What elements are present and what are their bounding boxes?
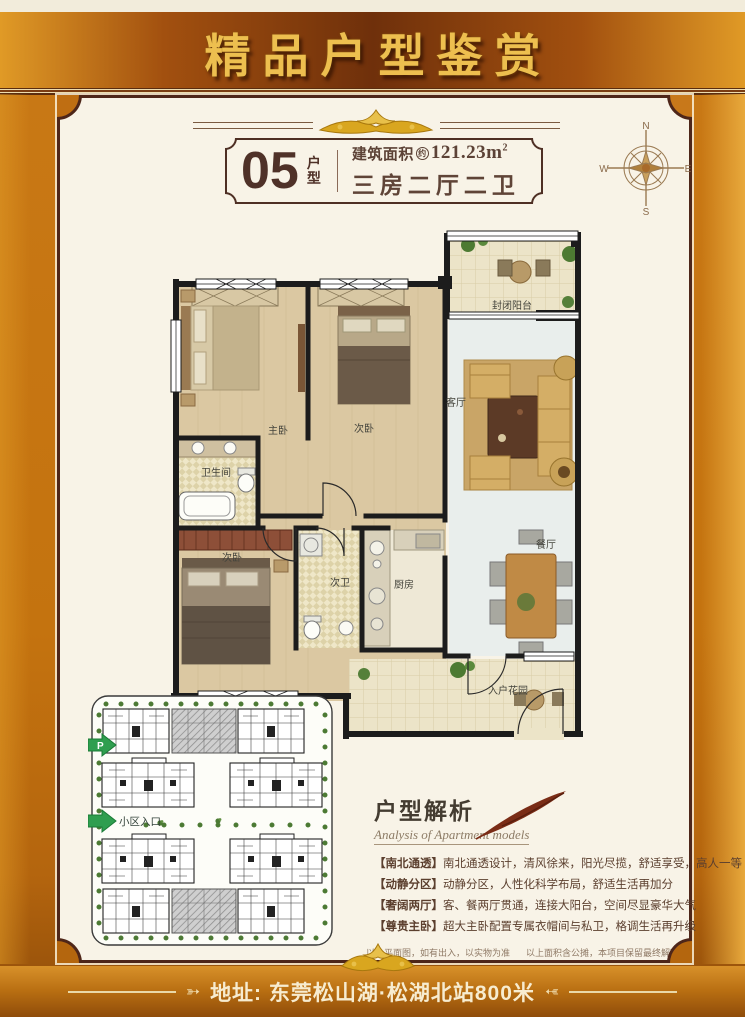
address-line-right — [569, 991, 677, 993]
unit-number: 05 — [241, 145, 299, 197]
room-label-entry-garden: 入户花园 — [488, 684, 528, 697]
address-ornament-right-icon: ➳ — [545, 983, 559, 1000]
panel-corner-notch — [667, 95, 692, 120]
gold-flourish-bottom-icon — [336, 940, 420, 980]
compass-n: N — [642, 121, 649, 132]
room-label-bathroom-2: 次卫 — [330, 576, 350, 589]
left-edge-glow — [0, 94, 30, 964]
poster-page: 精品户型鉴赏 05 户 型 建筑面积约121.23m2 三房二厅二卫 — [0, 0, 745, 1017]
address-line-left — [68, 991, 176, 993]
approx-circle: 约 — [416, 147, 429, 160]
room-label-balcony: 封闭阳台 — [492, 299, 532, 312]
room-label-bedroom-2: 次卧 — [354, 422, 374, 435]
banner-separator — [0, 88, 745, 95]
floorplan-drawing: 封闭阳台 客厅 主卧 次卧 卫生间 次卧 次卫 厨房 餐厅 入户花园 — [168, 228, 592, 746]
bedroom2-bed — [338, 306, 410, 404]
address-text: 地址: 东莞松山湖·松湖北站800米 — [210, 977, 535, 1007]
unit-details: 建筑面积约121.23m2 三房二厅二卫 — [352, 142, 520, 200]
analysis-items: 【南北通透】南北通透设计，清风徐来，阳光尽揽，舒适享受，高人一等 【动静分区】动… — [374, 854, 698, 938]
nightstand — [181, 290, 195, 302]
unit-type-label: 户 型 — [307, 156, 321, 186]
room-label-bedroom-3: 次卧 — [222, 551, 242, 564]
unit-rooms-summary: 三房二厅二卫 — [352, 166, 520, 200]
analysis-item: 【奢阔两厅】客、餐两厅贯通，连接大阳台，空间尽显豪华大气 — [374, 896, 698, 917]
sofa-set — [464, 356, 578, 490]
room-label-kitchen: 厨房 — [394, 578, 414, 591]
entrance-label: 小区入口 — [119, 816, 161, 828]
unit-box-divider — [337, 150, 338, 192]
address-ornament-left-icon: ➳ — [186, 983, 200, 1000]
unit-info-box: 05 户 型 建筑面积约121.23m2 三房二厅二卫 — [225, 138, 543, 204]
panel-corner-notch — [57, 938, 82, 963]
room-label-master-bedroom: 主卧 — [268, 424, 288, 437]
compass-e: E — [685, 164, 692, 175]
ornament-line-right — [440, 122, 560, 129]
bedroom3-bed — [182, 558, 270, 664]
title-banner: 精品户型鉴赏 — [0, 12, 745, 94]
panel-corner-notch — [57, 95, 82, 120]
compass-icon: N E S W — [598, 120, 694, 216]
ornament-line-left — [193, 122, 313, 129]
room-label-dining-room: 餐厅 — [536, 538, 556, 551]
nightstand — [181, 394, 195, 406]
analysis-item: 【尊贵主卧】超大主卧配置专属衣帽间与私卫，格调生活再升级 — [374, 917, 698, 938]
compass-s: S — [643, 207, 650, 216]
right-edge-glow — [701, 94, 745, 964]
bedroom3-wardrobe — [176, 530, 292, 550]
room-label-living-room: 客厅 — [446, 396, 466, 409]
nightstand — [274, 560, 288, 572]
compass-w: W — [599, 164, 609, 175]
master-tv-cabinet — [298, 324, 305, 392]
analysis-section: 户型解析 Analysis of Apartment models 【南北通透】… — [374, 792, 698, 938]
siteplan-drawing: P 小区入口 — [88, 693, 336, 951]
analysis-item: 【动静分区】动静分区，人性化科学布局，舒适生活再加分 — [374, 875, 698, 896]
parking-label: P — [97, 741, 104, 752]
top-strip — [0, 0, 745, 12]
feather-icon — [474, 788, 570, 840]
panel-corner-notch — [667, 938, 692, 963]
poster-title: 精品户型鉴赏 — [193, 20, 553, 86]
gold-flourish-icon — [310, 108, 442, 140]
analysis-item: 【南北通透】南北通透设计，清风徐来，阳光尽揽，舒适享受，高人一等 — [374, 854, 698, 875]
unit-area: 建筑面积约121.23m2 — [352, 142, 520, 164]
disclaimer-text: 以上平面图，如有出入，以实物为准 以上面积含公摊，本项目保留最终解释权 — [420, 946, 688, 959]
master-bed — [181, 306, 259, 390]
room-label-bathroom-master: 卫生间 — [201, 466, 231, 479]
